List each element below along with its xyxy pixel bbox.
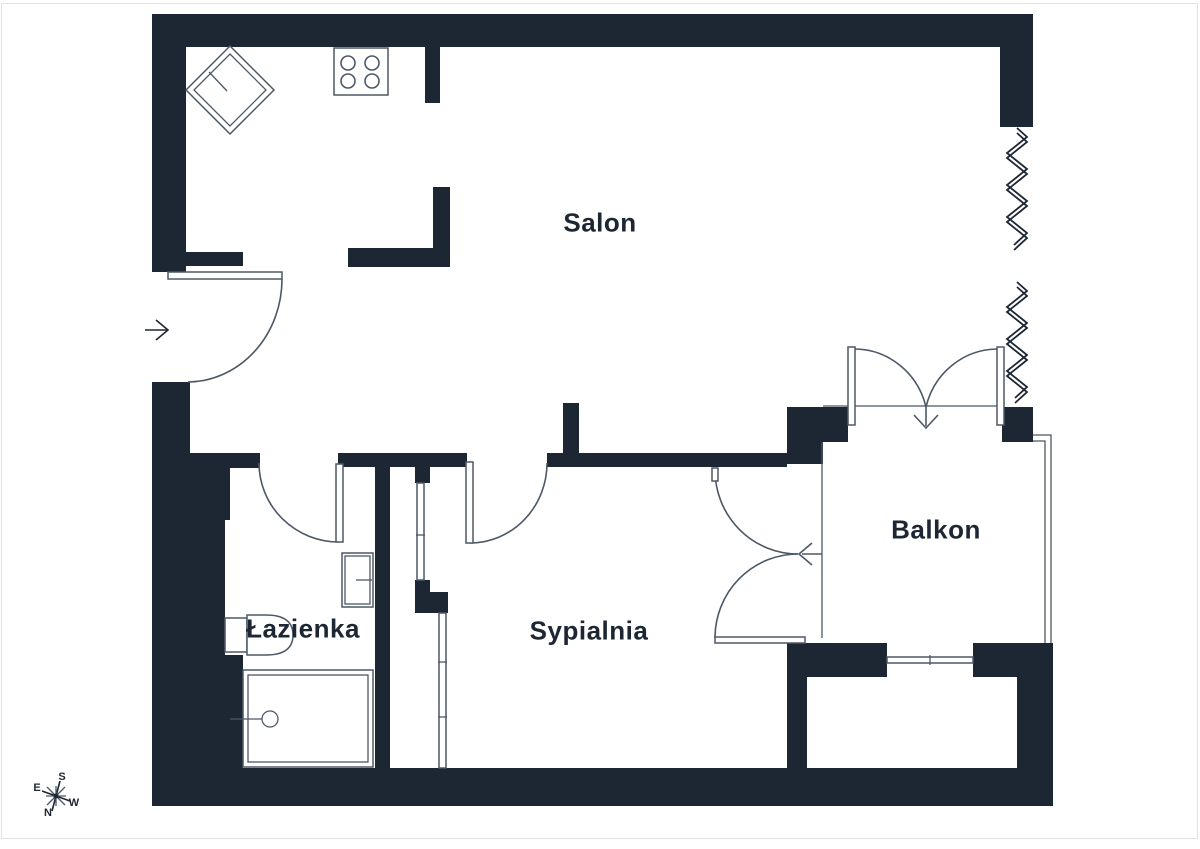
- compass-label-n: N: [44, 807, 52, 819]
- kitchen-sink-icon: [186, 46, 274, 134]
- bedroom-partition: [416, 483, 447, 768]
- compass-label-e: E: [33, 782, 40, 794]
- room-label-sypialnia: Sypialnia: [530, 616, 649, 647]
- bedroom-balcony-door: [712, 442, 822, 643]
- bathroom-door: [259, 463, 343, 542]
- shower-icon: [230, 670, 373, 767]
- balcony-outline: [887, 435, 1051, 665]
- entry-door: [168, 272, 282, 382]
- compass-label-w: W: [69, 797, 79, 809]
- bedroom-door: [466, 462, 547, 543]
- window-zigzag-icon: [1007, 128, 1027, 403]
- washbasin-icon: [342, 553, 373, 607]
- room-label-lazienka: Łazienka: [246, 614, 360, 645]
- compass-label-s: S: [58, 771, 65, 783]
- room-label-salon: Salon: [563, 208, 636, 239]
- room-label-balkon: Balkon: [891, 515, 981, 546]
- salon-balcony-door: [823, 347, 1004, 428]
- stove-icon: [334, 48, 388, 95]
- floor-plan: Salon Sypialnia Łazienka Balkon S E W N: [0, 0, 1200, 849]
- entry-arrow-icon: [145, 320, 168, 340]
